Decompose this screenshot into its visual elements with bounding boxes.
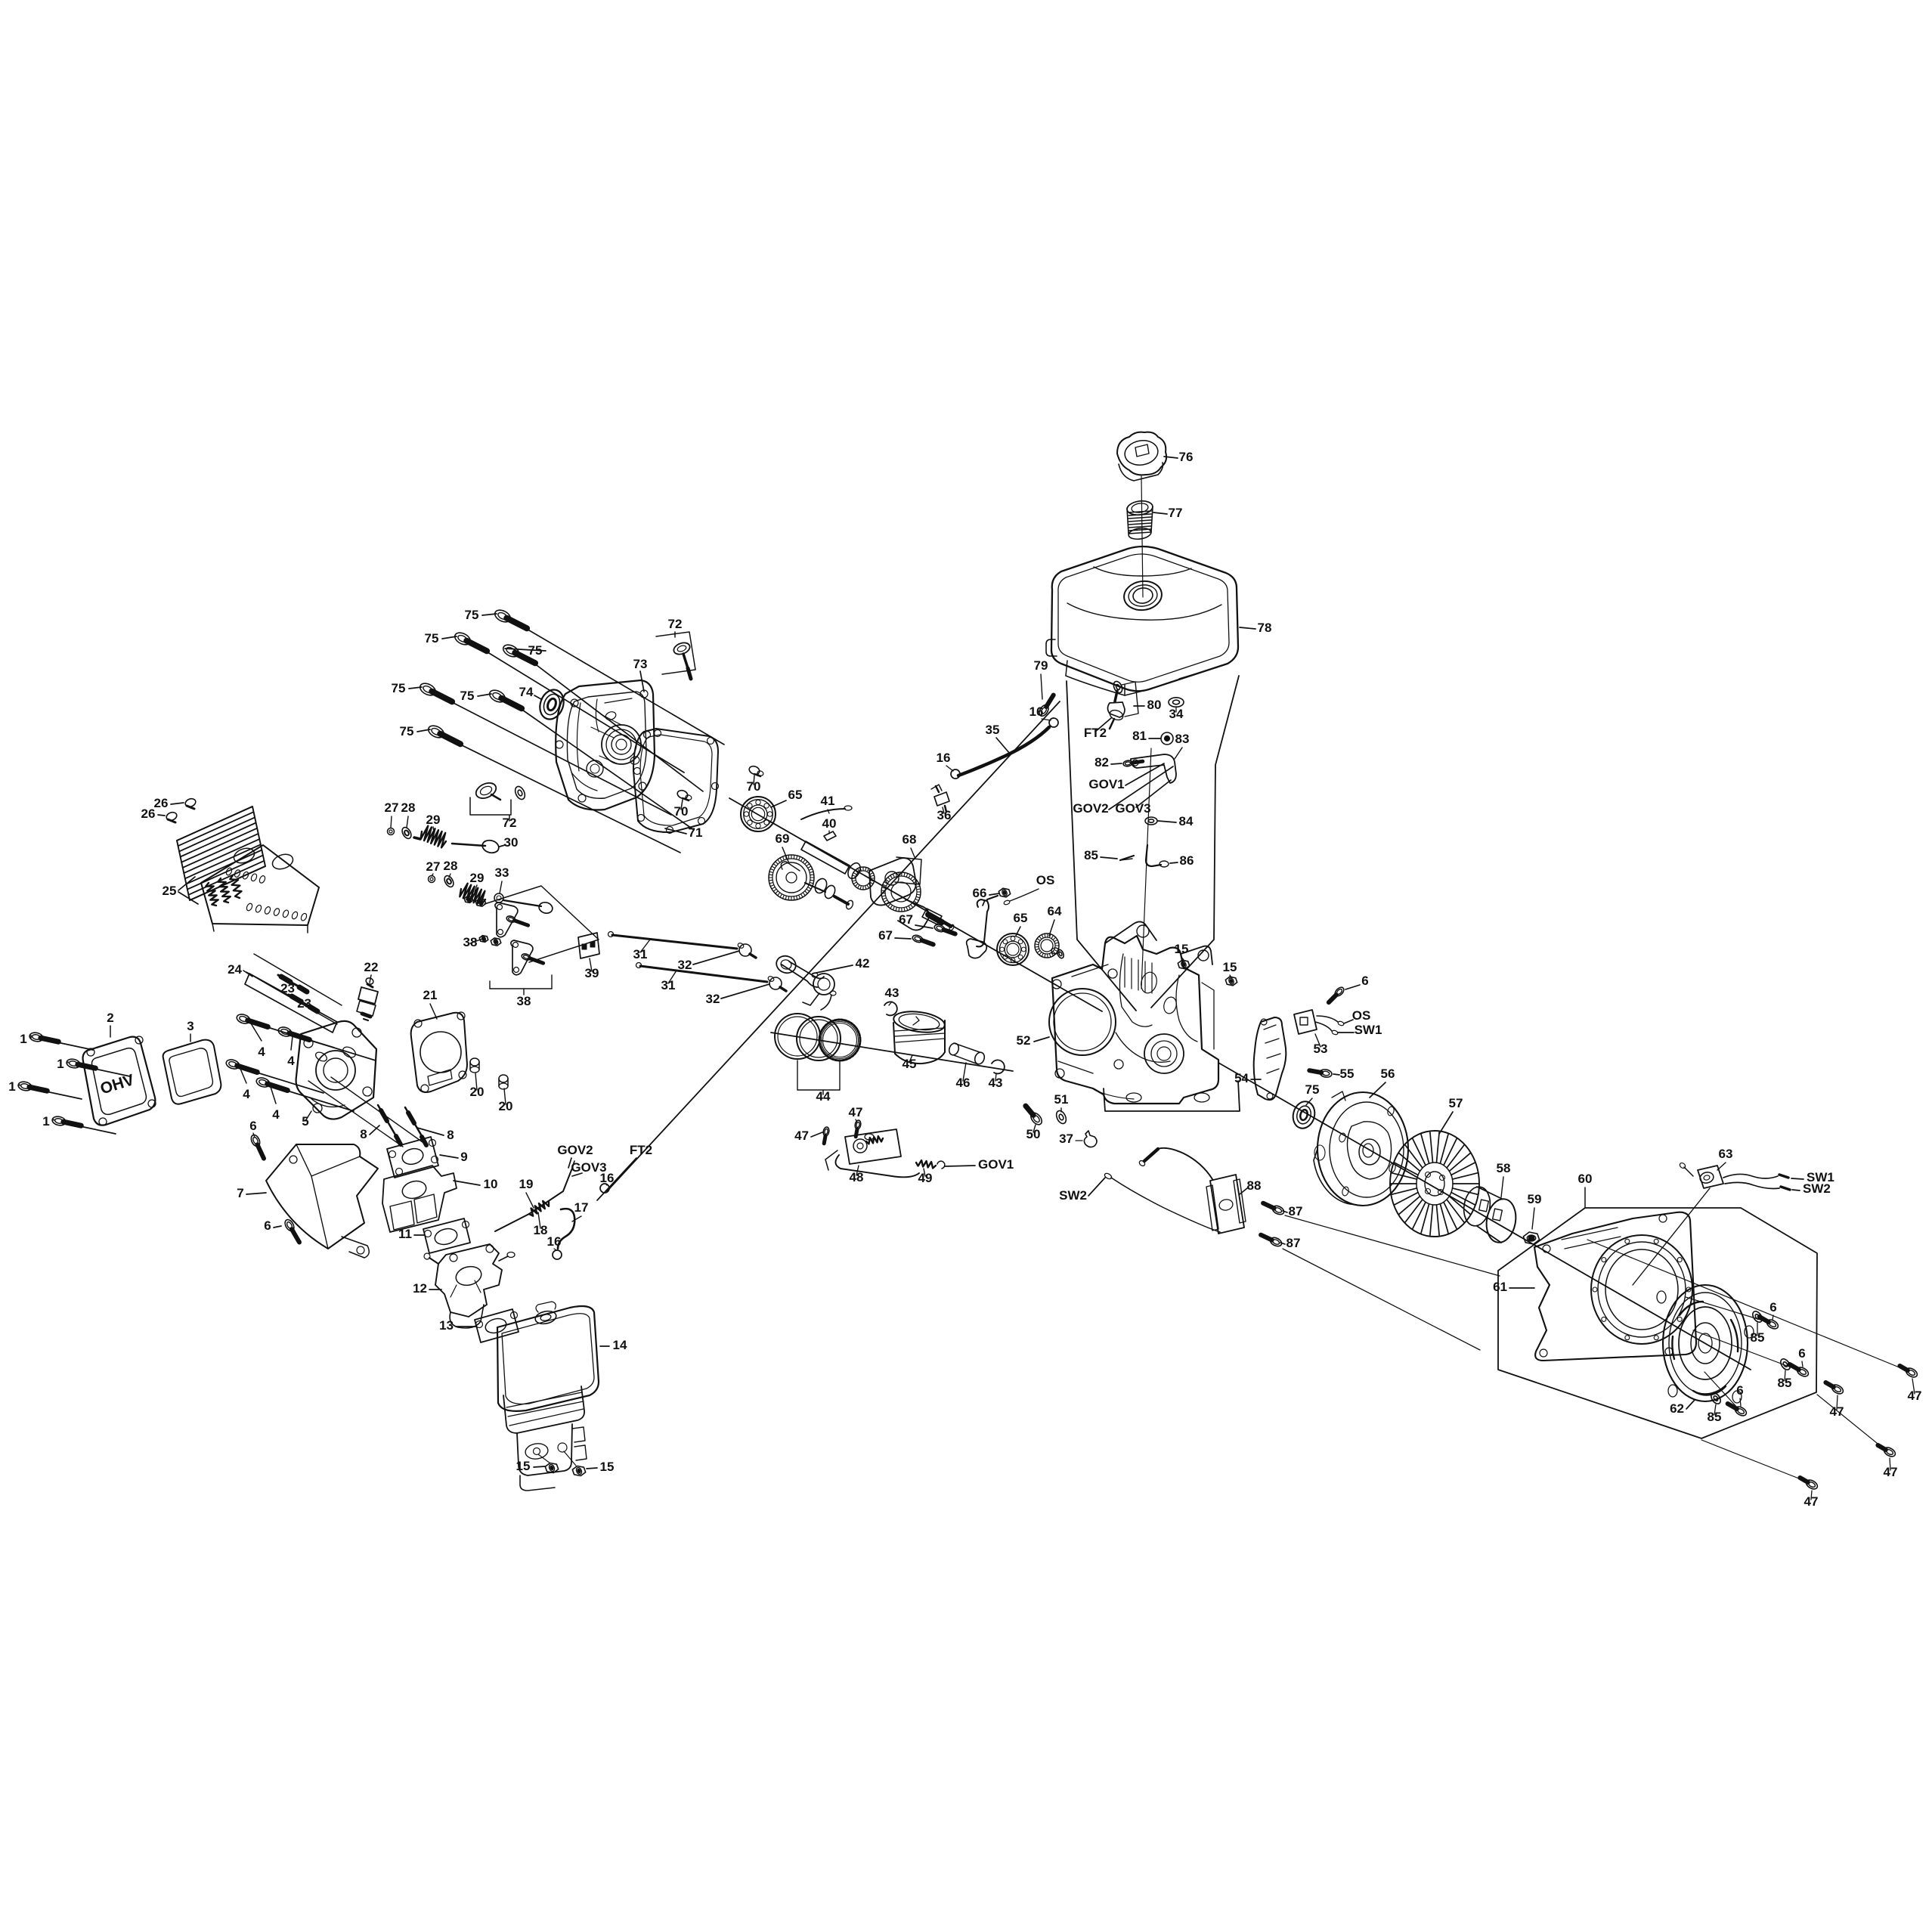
- svg-text:FT2: FT2: [1084, 726, 1107, 740]
- svg-text:6: 6: [1736, 1383, 1743, 1398]
- svg-text:6: 6: [1361, 974, 1368, 988]
- svg-text:3: 3: [187, 1019, 194, 1033]
- svg-text:GOV2: GOV2: [1073, 801, 1108, 816]
- svg-text:24: 24: [228, 962, 242, 977]
- svg-text:65: 65: [788, 788, 803, 802]
- svg-text:10: 10: [484, 1177, 498, 1191]
- svg-text:82: 82: [1094, 755, 1109, 769]
- svg-text:86: 86: [1180, 853, 1194, 868]
- svg-text:SW2: SW2: [1803, 1181, 1831, 1196]
- svg-text:30: 30: [504, 835, 519, 850]
- svg-text:81: 81: [1132, 729, 1147, 743]
- svg-text:37: 37: [1059, 1132, 1073, 1146]
- svg-text:15: 15: [1175, 942, 1189, 956]
- svg-text:50: 50: [1026, 1127, 1041, 1141]
- svg-text:28: 28: [401, 800, 416, 815]
- svg-text:22: 22: [364, 960, 379, 974]
- svg-text:40: 40: [822, 816, 837, 831]
- svg-text:26: 26: [154, 796, 169, 810]
- svg-text:61: 61: [1493, 1280, 1507, 1294]
- svg-text:16: 16: [547, 1234, 562, 1249]
- svg-text:GOV2: GOV2: [557, 1143, 593, 1157]
- svg-text:79: 79: [1034, 658, 1048, 673]
- svg-text:31: 31: [661, 978, 676, 992]
- svg-text:1: 1: [57, 1057, 63, 1071]
- svg-text:77: 77: [1169, 506, 1183, 520]
- svg-text:27: 27: [385, 800, 399, 815]
- svg-text:75: 75: [465, 608, 479, 622]
- svg-text:2: 2: [107, 1011, 113, 1025]
- svg-text:29: 29: [470, 871, 485, 885]
- svg-text:GOV1: GOV1: [978, 1157, 1014, 1172]
- svg-text:25: 25: [163, 884, 177, 898]
- svg-text:1: 1: [42, 1114, 49, 1129]
- svg-text:64: 64: [1048, 904, 1062, 918]
- svg-text:11: 11: [398, 1227, 412, 1241]
- svg-text:16: 16: [600, 1171, 615, 1185]
- svg-text:31: 31: [633, 947, 648, 961]
- svg-text:6: 6: [264, 1218, 271, 1233]
- svg-text:71: 71: [689, 825, 703, 840]
- svg-text:38: 38: [517, 994, 531, 1008]
- svg-text:15: 15: [1223, 960, 1237, 974]
- svg-text:75: 75: [460, 689, 475, 703]
- svg-text:63: 63: [1719, 1147, 1733, 1161]
- svg-text:73: 73: [633, 657, 648, 671]
- svg-text:27: 27: [426, 859, 441, 874]
- svg-text:87: 87: [1289, 1204, 1303, 1218]
- svg-text:75: 75: [1305, 1082, 1320, 1097]
- svg-text:7: 7: [237, 1186, 243, 1200]
- svg-text:6: 6: [1798, 1346, 1805, 1361]
- svg-text:75: 75: [400, 724, 414, 738]
- svg-text:57: 57: [1449, 1096, 1463, 1110]
- svg-text:33: 33: [495, 865, 509, 880]
- svg-text:39: 39: [585, 966, 599, 980]
- svg-text:FT2: FT2: [630, 1143, 652, 1157]
- svg-text:4: 4: [243, 1087, 250, 1101]
- svg-text:9: 9: [460, 1150, 467, 1164]
- svg-text:60: 60: [1578, 1172, 1593, 1186]
- svg-text:55: 55: [1340, 1067, 1355, 1081]
- svg-text:15: 15: [600, 1460, 615, 1474]
- svg-text:65: 65: [1014, 911, 1028, 925]
- svg-text:72: 72: [668, 617, 683, 631]
- svg-text:48: 48: [850, 1170, 864, 1184]
- svg-text:8: 8: [360, 1127, 367, 1141]
- svg-text:19: 19: [519, 1177, 534, 1191]
- svg-text:83: 83: [1175, 732, 1190, 746]
- svg-text:42: 42: [856, 956, 870, 971]
- svg-text:58: 58: [1497, 1161, 1511, 1175]
- svg-text:75: 75: [528, 643, 543, 658]
- svg-text:4: 4: [272, 1107, 280, 1122]
- svg-text:OS: OS: [1036, 873, 1055, 887]
- svg-text:53: 53: [1314, 1042, 1328, 1056]
- svg-text:49: 49: [918, 1171, 933, 1185]
- svg-text:26: 26: [141, 807, 156, 821]
- svg-text:6: 6: [1769, 1300, 1776, 1314]
- svg-text:8: 8: [447, 1128, 454, 1142]
- svg-text:54: 54: [1234, 1071, 1249, 1085]
- svg-text:35: 35: [986, 723, 1000, 737]
- svg-text:SW1: SW1: [1355, 1023, 1382, 1037]
- svg-text:67: 67: [878, 928, 893, 943]
- svg-text:75: 75: [425, 631, 439, 646]
- svg-text:OS: OS: [1352, 1008, 1371, 1023]
- svg-text:47: 47: [849, 1105, 863, 1119]
- svg-text:1: 1: [20, 1032, 26, 1046]
- svg-text:4: 4: [258, 1045, 265, 1059]
- svg-text:85: 85: [1084, 848, 1098, 862]
- svg-text:66: 66: [973, 886, 987, 900]
- svg-text:32: 32: [706, 992, 720, 1006]
- svg-text:78: 78: [1258, 621, 1272, 635]
- svg-text:12: 12: [413, 1281, 427, 1296]
- svg-text:68: 68: [903, 832, 917, 847]
- svg-text:14: 14: [613, 1338, 627, 1352]
- svg-text:69: 69: [776, 831, 790, 846]
- svg-text:87: 87: [1286, 1236, 1301, 1250]
- svg-text:GOV3: GOV3: [1115, 801, 1150, 816]
- svg-text:43: 43: [885, 986, 899, 1000]
- svg-text:36: 36: [937, 808, 952, 822]
- svg-text:4: 4: [287, 1054, 295, 1068]
- svg-text:80: 80: [1147, 698, 1162, 712]
- svg-text:75: 75: [392, 681, 406, 695]
- svg-text:62: 62: [1670, 1401, 1684, 1416]
- svg-text:15: 15: [516, 1459, 531, 1473]
- svg-text:13: 13: [439, 1318, 454, 1333]
- svg-text:76: 76: [1179, 450, 1194, 464]
- svg-text:84: 84: [1179, 814, 1194, 828]
- svg-text:29: 29: [426, 813, 441, 827]
- svg-text:88: 88: [1247, 1178, 1262, 1193]
- svg-text:56: 56: [1381, 1067, 1395, 1081]
- svg-text:45: 45: [903, 1057, 917, 1071]
- svg-text:41: 41: [821, 794, 835, 808]
- svg-text:52: 52: [1017, 1033, 1031, 1048]
- svg-text:GOV1: GOV1: [1088, 777, 1124, 791]
- svg-text:47: 47: [794, 1129, 809, 1143]
- svg-text:SW2: SW2: [1059, 1188, 1087, 1203]
- svg-text:59: 59: [1528, 1192, 1542, 1206]
- svg-text:6: 6: [249, 1119, 256, 1133]
- svg-text:21: 21: [423, 988, 438, 1002]
- svg-text:1: 1: [8, 1079, 15, 1094]
- svg-text:51: 51: [1054, 1092, 1069, 1107]
- svg-text:28: 28: [444, 859, 458, 873]
- svg-text:17: 17: [574, 1200, 589, 1215]
- svg-text:74: 74: [519, 685, 534, 699]
- svg-text:67: 67: [899, 912, 913, 927]
- svg-text:16: 16: [937, 751, 951, 765]
- svg-text:32: 32: [678, 958, 692, 972]
- svg-text:38: 38: [463, 935, 478, 949]
